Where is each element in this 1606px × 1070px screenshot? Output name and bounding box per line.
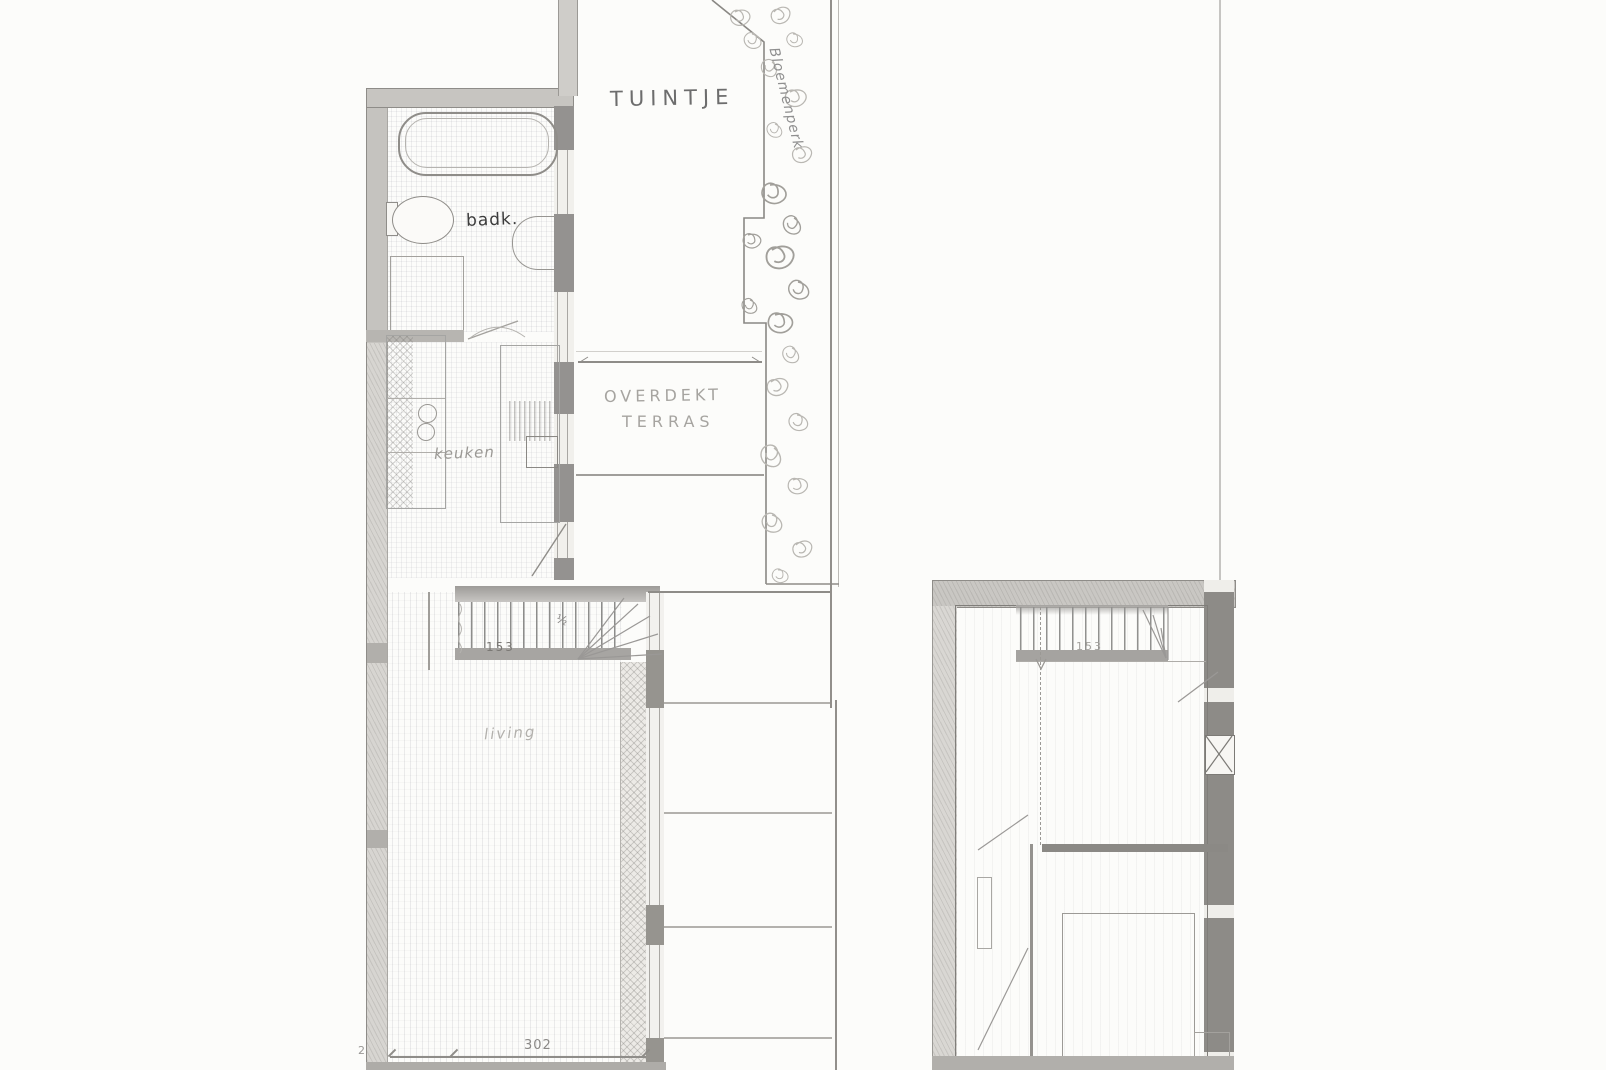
kitchen-counter-left [386,335,446,509]
bathroom-top-wall [366,88,574,108]
counter-hatch-v [509,401,551,441]
toilet [392,196,454,244]
wall-segment [554,558,574,580]
bed [1062,913,1195,1059]
uf-bottom-wall [932,1056,1234,1070]
washbasin [512,216,555,270]
side-strip-line [664,926,832,928]
wall-segment [646,905,664,945]
bottom-wall [366,1062,666,1070]
stair-top-band [455,586,660,602]
terrace-line-top [578,361,762,363]
side-strip-line [664,702,832,704]
uf-mid-wall [1042,844,1228,852]
plan-linework [0,0,1606,1070]
margin-note: 2 [358,1044,365,1057]
uf-chimney-box [1205,735,1235,775]
left-outer-wall [366,88,388,1070]
flowerbed-label: Bloemenperk [765,46,806,151]
uf-top-wall [932,580,1236,608]
staircase-upper [1020,607,1166,651]
counter-hatch [387,336,413,508]
staircase-ground [458,602,626,648]
wall-segment [1204,592,1234,688]
wall-segment [554,214,574,292]
stair-bottom-band [455,648,631,660]
uf-left-wall [932,606,957,1070]
hob-burner [418,404,437,423]
kitchen-counter-right [500,345,560,523]
plot-boundary-east [835,700,837,1070]
garden-boundary [712,0,766,584]
hob-burner [417,423,435,441]
shower-unit [390,256,464,332]
uf-stair-line [1016,661,1206,662]
dim-line-302 [390,1056,646,1058]
plot-boundary-east-2 [838,0,839,587]
uf-right-wall [1204,580,1234,1070]
terrace-label-line2: TERRAS [622,412,715,431]
side-strip-line [664,812,832,814]
garden-left-wall [558,0,578,96]
wall-segment [1204,702,1234,905]
bathtub-inner [405,118,549,168]
living-room [386,592,622,1070]
bathtub [398,112,558,176]
kitchen-sink [526,436,558,468]
wall-post [367,643,387,663]
stair-dim-line [428,592,430,670]
side-strip-line [664,1037,832,1039]
counter-line [387,398,445,399]
wall-post [367,830,387,848]
garden-label: TUINTJE [610,85,735,111]
terrace-label-line1: OVERDEKT [604,385,722,406]
uf-void-dashed-line [1040,607,1041,845]
uf-stair-bottom-band [1016,650,1168,661]
counter-line [387,452,445,453]
living-east-wall [620,662,648,1070]
floorplan-scan: TUINTJE Bloemenperk OVERDEKT TERRAS badk… [0,0,1606,1070]
wall-segment [367,88,387,343]
flowerbed-scribbles-dark [740,178,811,337]
living-east-windows [646,592,664,1070]
terrace-line-faint [576,351,762,352]
garden-south-line [648,591,832,593]
terrace-line-mid [576,474,764,476]
uf-partition [1030,844,1033,1058]
plot-boundary-east [830,0,832,708]
wall-segment [646,650,664,708]
uf-closet [977,877,992,949]
flowerbed-scribbles [728,7,812,587]
